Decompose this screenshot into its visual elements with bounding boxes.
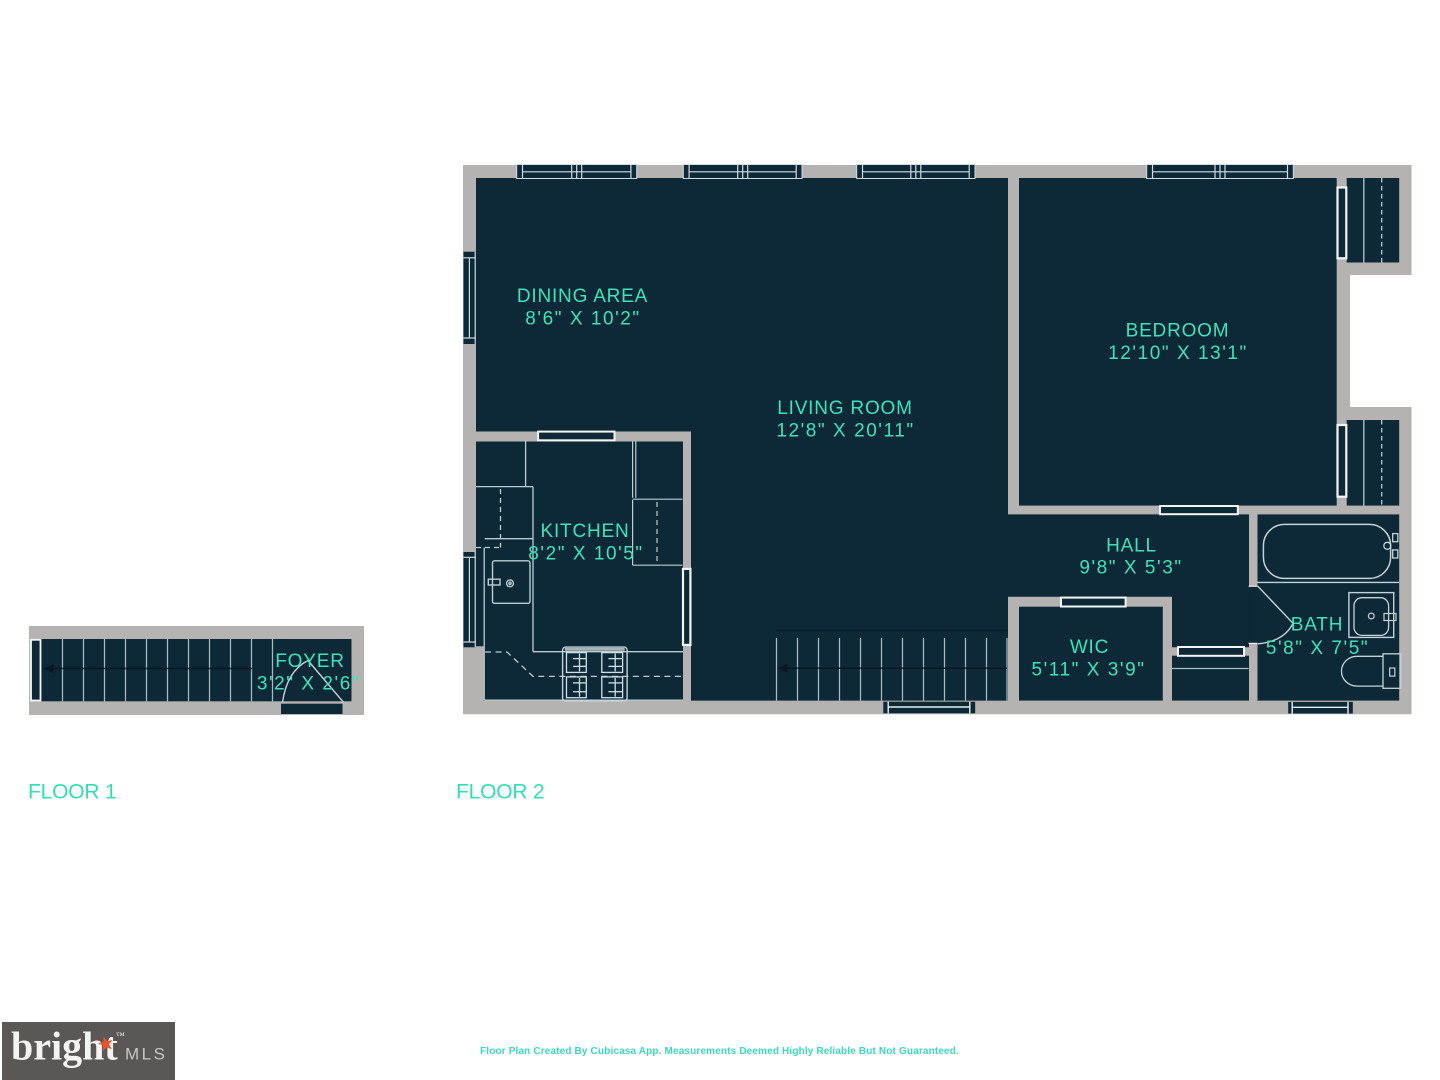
- svg-text:HALL: HALL: [1106, 536, 1157, 557]
- svg-text:3'2" X 2'6": 3'2" X 2'6": [257, 674, 360, 695]
- svg-text:5'8" X 7'5": 5'8" X 7'5": [1266, 638, 1369, 659]
- svg-text:8'2" X 10'5": 8'2" X 10'5": [528, 544, 643, 565]
- svg-text:BEDROOM: BEDROOM: [1126, 321, 1230, 342]
- svg-text:bright: bright: [11, 1024, 118, 1069]
- svg-text:5'11" X 3'9": 5'11" X 3'9": [1032, 660, 1146, 681]
- svg-text:WIC: WIC: [1070, 637, 1109, 658]
- svg-text:9'8" X 5'3": 9'8" X 5'3": [1079, 558, 1182, 579]
- svg-text:DINING AREA: DINING AREA: [517, 286, 648, 307]
- svg-text:MLS: MLS: [125, 1045, 167, 1064]
- svg-text:FOYER: FOYER: [275, 651, 344, 672]
- svg-text:FLOOR 1: FLOOR 1: [28, 781, 116, 804]
- svg-text:8'6" X 10'2": 8'6" X 10'2": [525, 309, 640, 330]
- svg-text:™: ™: [116, 1031, 125, 1041]
- svg-text:KITCHEN: KITCHEN: [541, 521, 630, 542]
- svg-text:LIVING ROOM: LIVING ROOM: [777, 398, 912, 419]
- svg-text:FLOOR 2: FLOOR 2: [456, 781, 544, 804]
- svg-text:BATH: BATH: [1291, 615, 1343, 636]
- svg-text:12'8" X 20'11": 12'8" X 20'11": [776, 421, 914, 442]
- svg-text:Floor Plan Created By Cubicasa: Floor Plan Created By Cubicasa App. Meas…: [480, 1046, 959, 1057]
- svg-text:12'10" X 13'1": 12'10" X 13'1": [1108, 343, 1248, 364]
